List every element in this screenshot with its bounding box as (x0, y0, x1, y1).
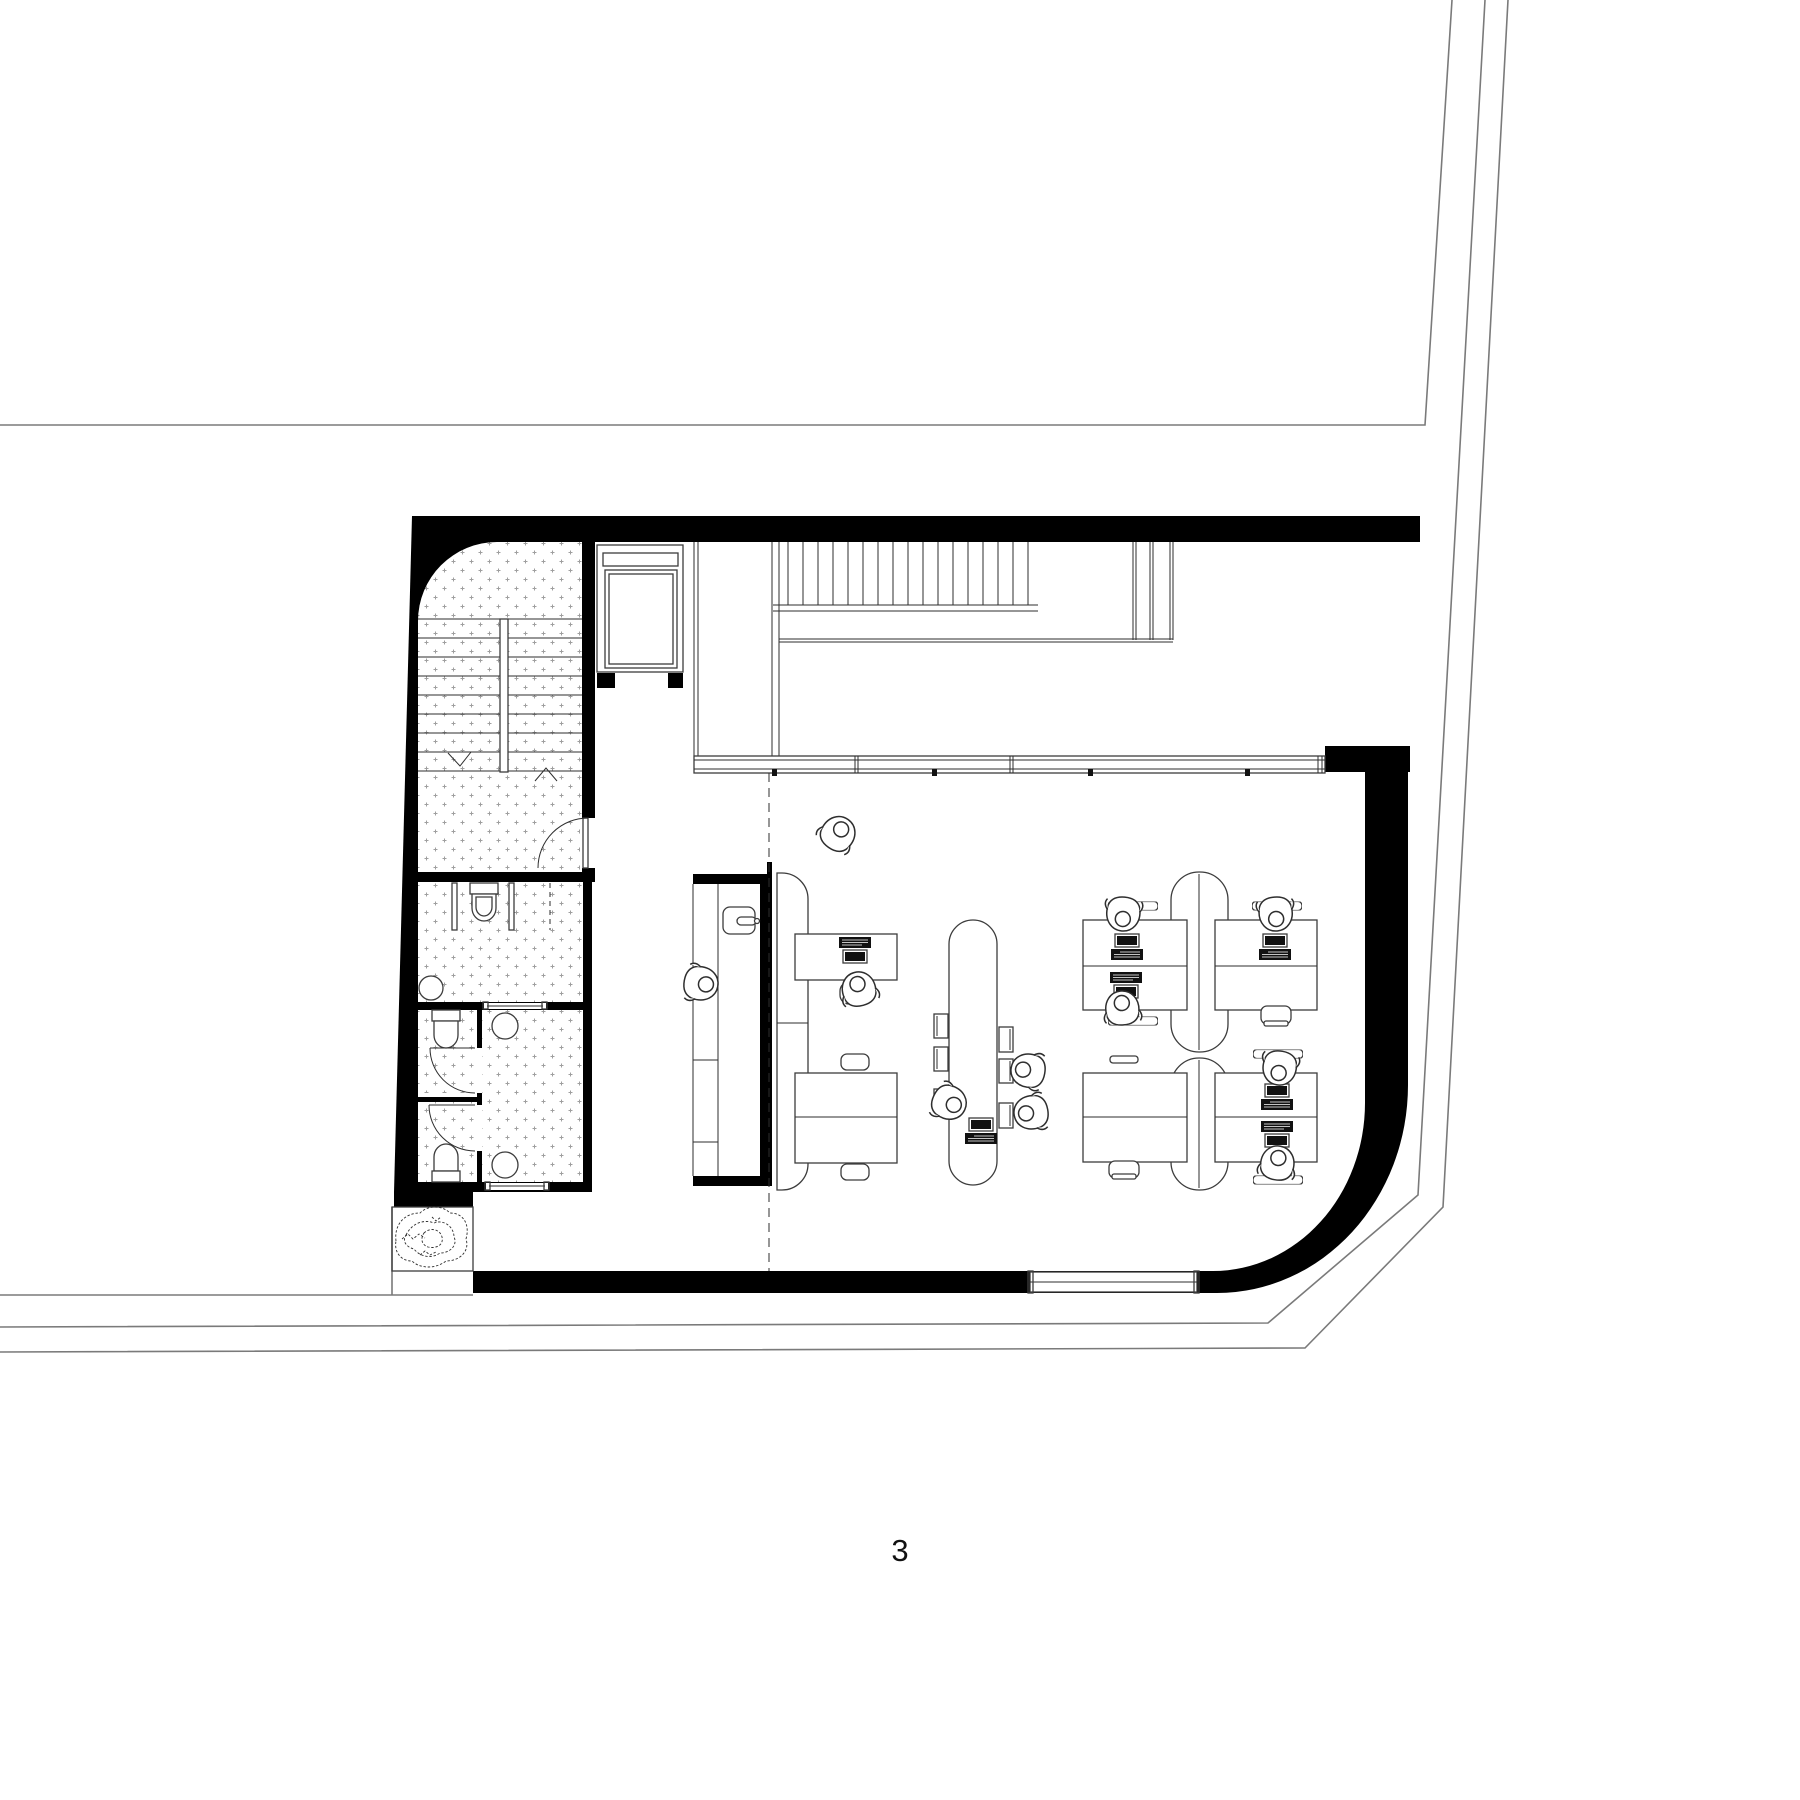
elevator-cab-inner (609, 574, 673, 664)
person-at-conference (1011, 1091, 1051, 1134)
chair-back (1264, 1021, 1288, 1026)
upper-stair-treads (788, 542, 1028, 605)
elevator-counterweight (603, 553, 678, 566)
elevator-jamb-left (597, 673, 615, 688)
hall-west-wall (694, 542, 698, 756)
office-desks (795, 872, 1317, 1190)
conference-table (934, 920, 1013, 1185)
kitchenette-faucet (737, 917, 756, 925)
wc3-sink-top (492, 1013, 518, 1039)
wc-divider-wall-a (477, 1010, 482, 1048)
wc3-sink-bottom (492, 1152, 518, 1178)
wc1-screen-right (509, 883, 514, 930)
void-landing-edge (779, 639, 1173, 642)
elevator-cab (605, 570, 677, 668)
shelf-band (694, 756, 1325, 776)
void-end-walls (1133, 542, 1173, 640)
wc-east-wall (583, 882, 592, 1192)
wc-divider-wall-c (477, 1151, 482, 1182)
monitor-keyboard (1261, 1121, 1293, 1147)
conference-chair (934, 1014, 948, 1038)
monitor-keyboard (839, 937, 871, 963)
wc1-screen-left (452, 883, 457, 930)
wc-divider-wall-b (477, 1093, 482, 1105)
monitor-keyboard (1111, 934, 1143, 960)
upper-stair-stringer (773, 605, 1038, 611)
stair-door-leaf (583, 818, 588, 868)
elevator (597, 545, 683, 672)
planter-tree (392, 1207, 473, 1271)
person-at-conference (1008, 1049, 1048, 1092)
desk (795, 1073, 897, 1163)
conference-table-top (949, 920, 997, 1185)
person-walking (813, 809, 863, 858)
wc4-toilet-tank (432, 1171, 460, 1182)
reception-top-wall (693, 874, 772, 884)
office-chair (841, 1054, 869, 1070)
north-boundary-line (0, 0, 1452, 425)
conference-chair (999, 1103, 1013, 1128)
floor-plan-drawing: 3 (0, 0, 1800, 1800)
person-standing (681, 962, 721, 1005)
reception-bottom-wall (693, 1176, 772, 1186)
east-wall-curved (1213, 772, 1408, 1293)
stair-east-wall-upper (582, 542, 595, 818)
wc1-toilet-tank (470, 883, 498, 894)
elevator-jamb-right (668, 673, 683, 688)
void-edge (772, 542, 779, 756)
planter-top-wall (394, 1192, 473, 1207)
shelf-band-header-wall (1325, 746, 1410, 772)
floor-plan-sheet: 3 (0, 0, 1800, 1800)
reception-desk (693, 773, 808, 1271)
top-wall (412, 516, 1420, 542)
chair-back (1110, 1056, 1138, 1063)
reception-counter-divisions (693, 1060, 718, 1142)
laptop (965, 1118, 997, 1144)
conference-chair (934, 1047, 948, 1071)
south-window (1028, 1271, 1199, 1293)
stair-south-wall (418, 872, 595, 882)
conference-chair (999, 1027, 1013, 1052)
elevator-shaft (597, 545, 683, 672)
wc2-toilet-bowl (434, 1021, 458, 1048)
floor-number-label: 3 (891, 1533, 908, 1568)
monitor-keyboard (1259, 934, 1291, 960)
kitchenette-faucet-head (755, 919, 760, 924)
wc-divider-wall-h (418, 1097, 477, 1102)
stair-divider (500, 619, 508, 772)
wc2-toilet-tank (432, 1010, 460, 1021)
office-chair (841, 1164, 869, 1180)
wc4-toilet-bowl (434, 1144, 458, 1171)
monitor-keyboard (1261, 1084, 1293, 1110)
tree-icon (396, 1207, 468, 1267)
wc1-sink (419, 976, 443, 1000)
upper-stair-hall (694, 542, 1173, 756)
chair-back (1112, 1174, 1136, 1179)
